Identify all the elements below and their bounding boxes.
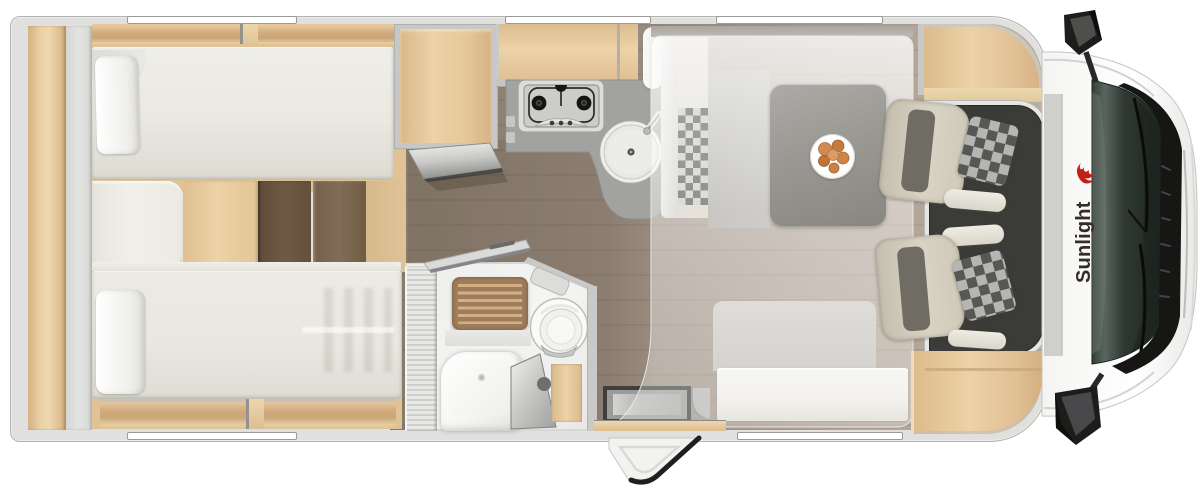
svg-text:Sunlight: Sunlight: [1073, 201, 1095, 283]
